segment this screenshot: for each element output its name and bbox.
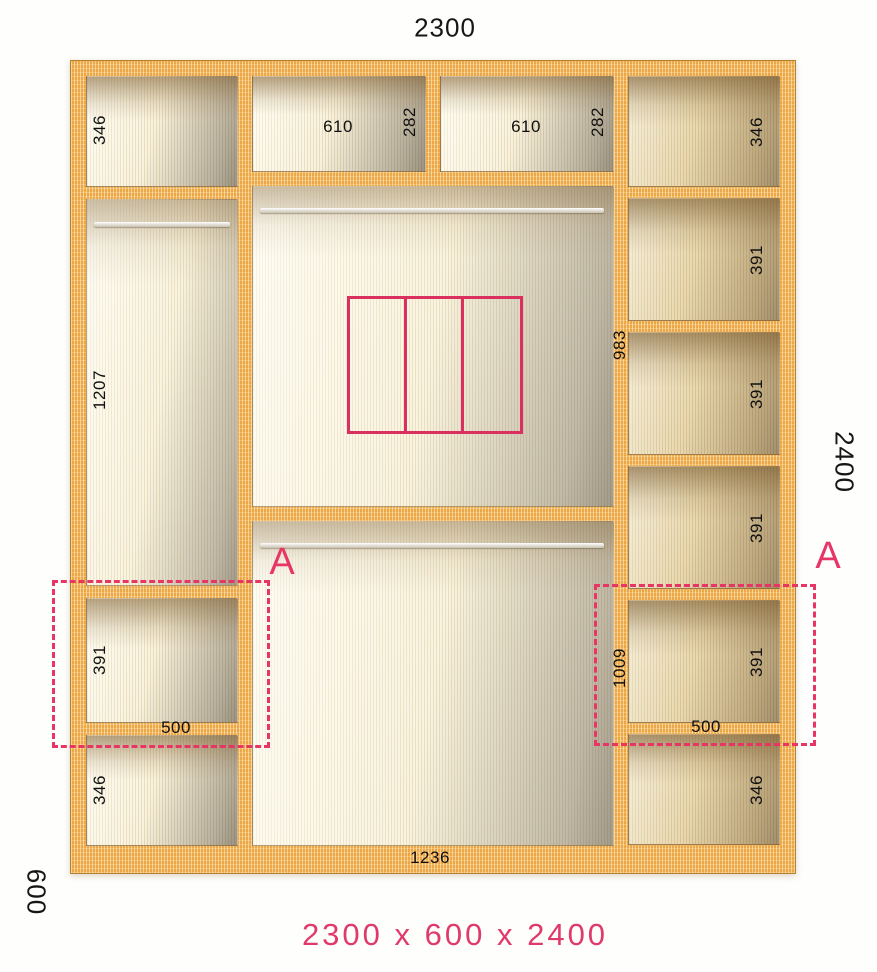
dim-middle-lower-height: 1009 [610,648,630,688]
dim-left-top-height: 346 [90,115,110,145]
dim-middle-top-left-width: 610 [323,117,353,137]
hanging-rail-left [94,222,230,227]
dim-overall-depth: 600 [21,869,52,915]
dim-middle-top-left-height: 282 [400,107,420,137]
dim-middle-top-right-height: 282 [588,107,608,137]
dim-middle-bottom-width: 1236 [410,848,450,868]
dim-overall-height: 2400 [829,431,860,493]
dim-right-top-height: 346 [747,117,767,147]
section-a-marker-right: A [815,537,840,575]
dim-right-shelf3-height: 391 [747,513,767,543]
dim-right-shelf-width: 500 [691,717,721,737]
dim-left-bottom-height: 346 [90,775,110,805]
dim-right-shelf4-height: 391 [747,647,767,677]
compartment-middle-lower-hanging [252,521,614,846]
dim-right-shelf2-height: 391 [747,379,767,409]
dim-overall-width: 2300 [414,13,476,44]
dim-left-shelf-height: 391 [90,645,110,675]
drawer-divider-1 [404,299,407,431]
dim-right-bottom-height: 346 [747,775,767,805]
drawer-unit-symbol [347,296,523,434]
drawer-divider-2 [461,299,464,431]
hanging-rail-middle-upper [260,208,604,213]
dim-middle-upper-height: 983 [610,330,630,360]
dim-left-hang-height: 1207 [90,370,110,410]
caption-overall-size: 2300 x 600 x 2400 [302,917,608,953]
dim-left-shelf-width: 500 [161,718,191,738]
hanging-rail-middle-lower [260,543,604,548]
dim-middle-top-right-width: 610 [511,117,541,137]
section-a-marker-left: A [269,543,294,581]
diagram-board: A A 2300 2400 600 346 1207 391 500 346 6… [0,0,877,972]
dim-right-shelf1-height: 391 [747,245,767,275]
